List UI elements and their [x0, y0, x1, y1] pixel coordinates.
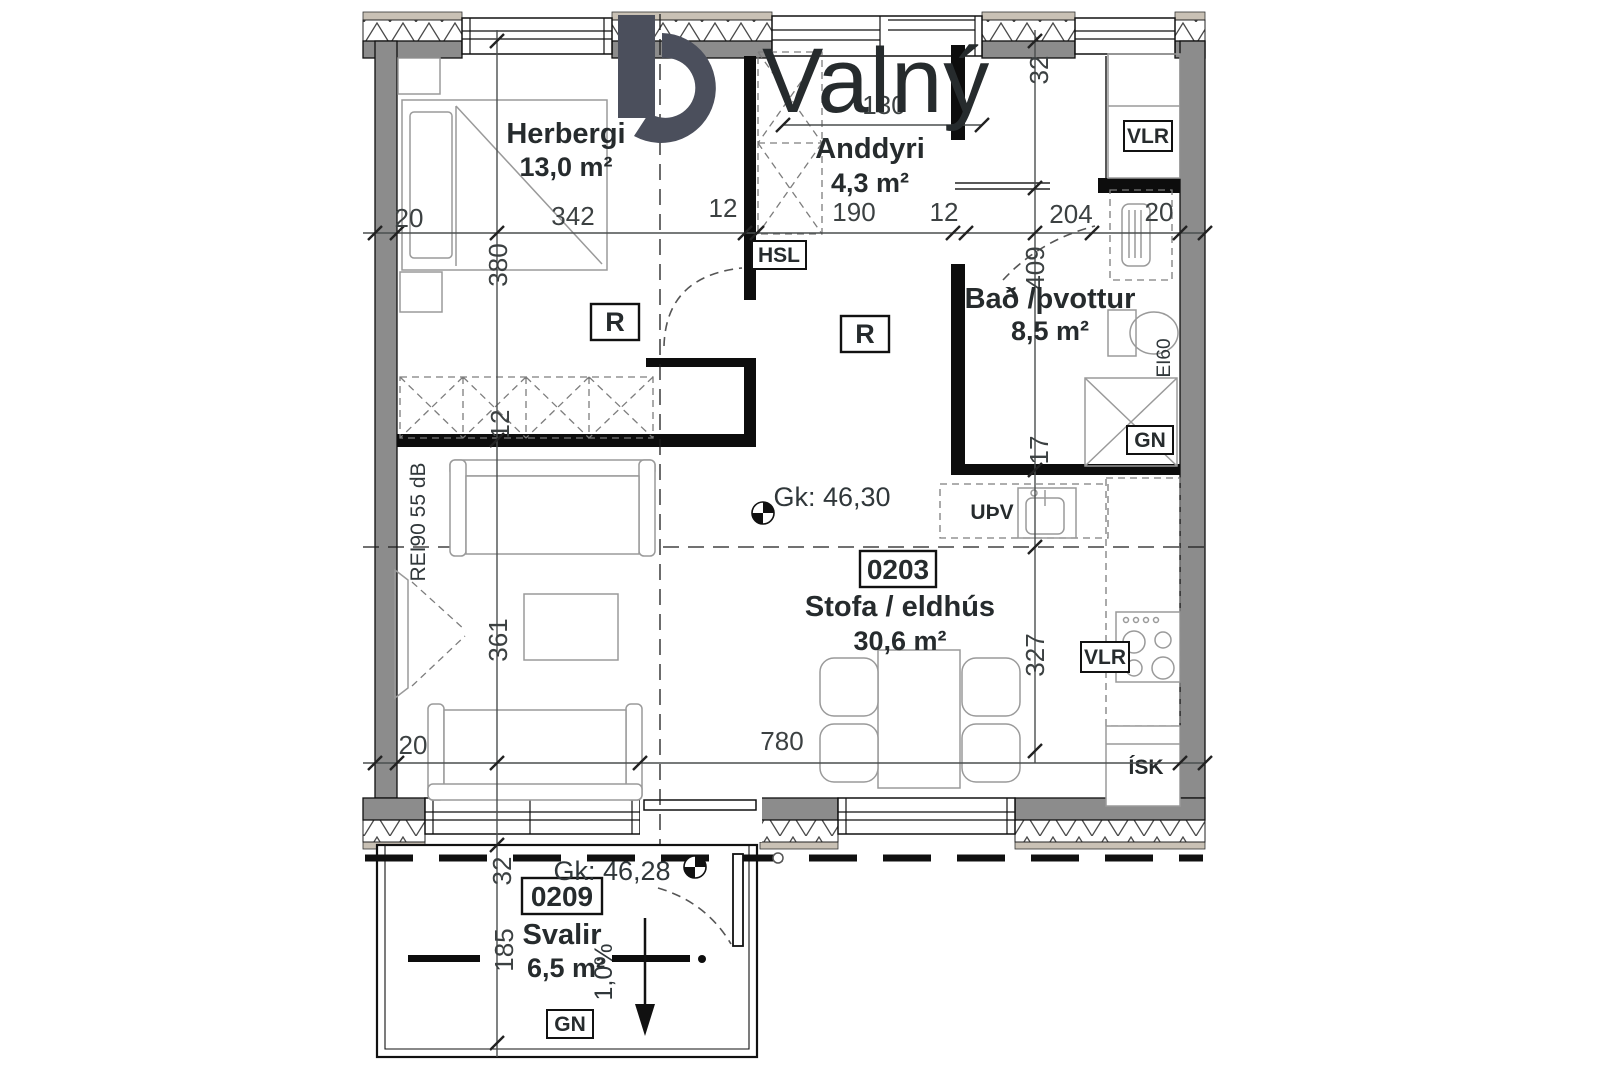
- hsl-tag: HSL: [752, 241, 806, 269]
- svg-text:EI60: EI60: [1154, 338, 1175, 377]
- svg-text:Anddyri: Anddyri: [815, 133, 925, 165]
- svg-text:32: 32: [1024, 56, 1054, 85]
- window-bedroom-top: [462, 18, 612, 54]
- bedroom-door-swing: [664, 268, 742, 346]
- room-label-anddyri: Anddyri 4,3 m²: [815, 133, 925, 198]
- benchmark-icon-main: [752, 502, 774, 524]
- svg-text:13,0 m²: 13,0 m²: [519, 152, 612, 182]
- svg-text:12: 12: [930, 197, 959, 227]
- level-main: Gk: 46,30: [773, 482, 890, 512]
- svg-text:Bað /þvottur: Bað /þvottur: [965, 283, 1136, 315]
- slab-edge-marker: [773, 853, 783, 863]
- nightstand-bottom: [400, 272, 442, 312]
- svg-text:Herbergi: Herbergi: [506, 118, 625, 150]
- benchmark-icon-balcony: [684, 856, 706, 878]
- svg-text:30,6 m²: 30,6 m²: [853, 626, 946, 656]
- nightstand-top: [398, 58, 440, 94]
- svg-text:20: 20: [395, 203, 424, 233]
- sofa-bottom: [428, 704, 642, 800]
- svg-text:12: 12: [485, 410, 515, 439]
- svg-text:GN: GN: [554, 1013, 586, 1036]
- slope-label: 1,0%: [590, 944, 618, 1001]
- svg-text:GN: GN: [1134, 429, 1166, 452]
- floor-plan-page: HSL GN VLR UÞV: [0, 0, 1600, 1067]
- coffee-table: [524, 594, 618, 660]
- svg-text:VLR: VLR: [1084, 646, 1126, 669]
- svg-text:20: 20: [1145, 197, 1174, 227]
- svg-text:342: 342: [551, 201, 594, 231]
- brand-name: Valný: [762, 30, 990, 132]
- dining-set: [820, 650, 1020, 788]
- svg-text:REI90 55 dB: REI90 55 dB: [407, 462, 430, 581]
- svg-text:8,5 m²: 8,5 m²: [1011, 316, 1089, 346]
- svg-text:17: 17: [1024, 436, 1054, 465]
- wardrobe: [400, 377, 653, 438]
- sofa-top: [450, 460, 655, 556]
- svg-text:ÍSK: ÍSK: [1128, 756, 1163, 779]
- fire-rating-label: REI90 55 dB: [407, 462, 430, 581]
- tv-unit: [395, 570, 465, 698]
- svg-text:20: 20: [399, 730, 428, 760]
- level-balcony: Gk: 46,28: [553, 856, 670, 886]
- svg-text:VLR: VLR: [1127, 125, 1169, 148]
- ei60-label: EI60: [1154, 338, 1175, 377]
- logo-mark-stem: [618, 15, 655, 118]
- svg-text:327: 327: [1020, 633, 1050, 676]
- gn-tag-bath: GN: [1127, 426, 1173, 454]
- svg-text:185: 185: [489, 928, 519, 971]
- vlr-tag-top: VLR: [1124, 121, 1172, 151]
- vlr-tag-kitchen: VLR: [1081, 642, 1129, 672]
- svg-text:380: 380: [483, 243, 513, 286]
- gn-tag-balcony: GN: [547, 1010, 593, 1038]
- window-living-bottom: [425, 798, 640, 834]
- floor-plan-canvas: HSL GN VLR UÞV: [0, 0, 1600, 1067]
- svg-text:R: R: [855, 319, 875, 349]
- fridge: ÍSK: [1106, 726, 1180, 806]
- room-label-stofa: 0203 Stofa / eldhús 30,6 m²: [805, 551, 995, 656]
- svg-text:361: 361: [483, 618, 513, 661]
- svg-text:4,3 m²: 4,3 m²: [831, 168, 909, 198]
- svg-text:0203: 0203: [867, 554, 929, 585]
- svg-text:HSL: HSL: [758, 244, 800, 267]
- vlr-cabinet-top: [1108, 54, 1180, 178]
- svg-text:204: 204: [1049, 199, 1092, 229]
- balcony-door-leaf: [733, 854, 743, 946]
- upv-label: UÞV: [970, 501, 1013, 524]
- kitchen-sink: [1018, 488, 1076, 538]
- svg-text:Stofa / eldhús: Stofa / eldhús: [805, 591, 995, 623]
- svg-text:1,0%: 1,0%: [590, 944, 618, 1001]
- svg-text:32: 32: [487, 857, 517, 886]
- svg-text:780: 780: [760, 726, 803, 756]
- svg-text:12: 12: [709, 193, 738, 223]
- svg-text:R: R: [605, 307, 625, 337]
- window-kitchen-bottom: [838, 798, 1015, 834]
- radiator-tag-bedroom: R: [591, 304, 639, 340]
- balcony-door: [640, 796, 762, 842]
- svg-text:190: 190: [832, 197, 875, 227]
- radiator-tag-hall: R: [841, 316, 889, 352]
- window-bath-top: [1075, 18, 1175, 54]
